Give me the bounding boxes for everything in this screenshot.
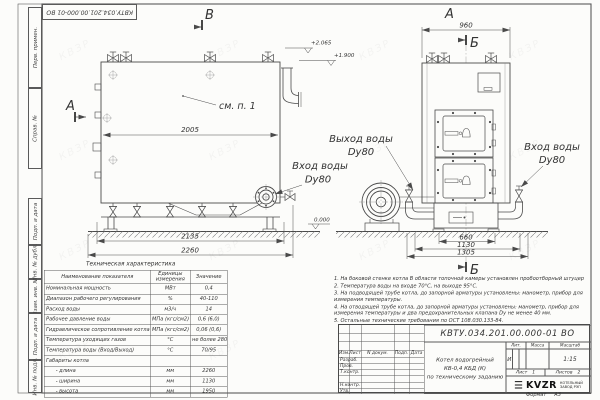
spec-cell-unit: мм bbox=[150, 387, 190, 397]
spec-cell-unit: мм bbox=[150, 376, 190, 386]
spec-cell-value: 0,06 (0,6) bbox=[190, 325, 227, 335]
margin-label: Подп. и дата bbox=[32, 318, 39, 355]
scale-header: Масштаб bbox=[549, 342, 591, 349]
spec-cell-unit: °С bbox=[150, 335, 190, 345]
ground-line bbox=[88, 232, 548, 238]
margin-box-podp-data-1: Подп. и дата bbox=[28, 198, 42, 245]
spec-cell-unit bbox=[150, 356, 190, 366]
product-name-line2: КВ-0,4 КБД (К) bbox=[444, 365, 486, 372]
side-view bbox=[93, 52, 301, 232]
drawing-sheet: КВЗР КВЗР КВЗР КВЗР КВЗР КВЗР КВЗР КВЗР … bbox=[0, 0, 600, 400]
spec-cell-value: 14 bbox=[190, 304, 227, 314]
note-4: 4. На отводящей трубе котла, до запорной… bbox=[334, 304, 591, 317]
sheets-total-cell: Листов 2 bbox=[545, 369, 591, 376]
spec-header-name: Наименование показателя bbox=[44, 270, 150, 284]
margin-label: Инв. № дубл. bbox=[32, 243, 39, 281]
col-data: Дата bbox=[409, 351, 424, 356]
spec-cell-unit: мм bbox=[150, 366, 190, 376]
dim-2005: 2005 bbox=[181, 126, 199, 134]
spec-cell-value: 40-110 bbox=[190, 294, 227, 304]
sig-utv: Утв. bbox=[340, 389, 349, 394]
dim-2260: 2260 bbox=[181, 247, 199, 255]
inlet-side-label: Вход воды bbox=[292, 161, 348, 172]
sig-nkontr: Н.контр. bbox=[340, 383, 360, 388]
spec-cell-unit: МВт bbox=[150, 284, 190, 294]
product-name-line1: Котел водогрейный bbox=[436, 356, 494, 363]
sheet-value: 1 bbox=[532, 370, 535, 375]
spec-cell-unit: м3/ч bbox=[150, 304, 190, 314]
outlet-dn-label: Dy80 bbox=[348, 147, 374, 158]
spec-row: Гидравлическое сопротивление котлаМПа (к… bbox=[44, 325, 227, 335]
side-valve bbox=[280, 191, 295, 201]
spec-row: Номинальная мощностьМВт0,4 bbox=[44, 284, 227, 294]
spec-cell-unit: МПа (кгс/см2) bbox=[150, 315, 190, 325]
spec-cell-name: - длина bbox=[44, 366, 150, 376]
section-label-b-top: Б bbox=[470, 36, 479, 51]
spec-cell-unit: % bbox=[150, 294, 190, 304]
spec-cell-name: Диапазон рабочего регулирования bbox=[44, 294, 150, 304]
outlet-label: Выход воды bbox=[329, 134, 393, 145]
dim-960: 960 bbox=[459, 22, 473, 30]
sig-prov: Пров. bbox=[340, 364, 353, 369]
lit-cell-3 bbox=[519, 349, 526, 369]
lit-header: Лит. bbox=[506, 342, 526, 349]
doc-number-stamp: КВТУ.034.201.00.000-01 ВО bbox=[42, 4, 137, 20]
sig-tkontr: Т.контр. bbox=[340, 370, 360, 375]
title-block: Изм. Лист N докум. Подп. Дата Разраб. Пр… bbox=[338, 324, 590, 393]
inlet-side-dn-label: Dy80 bbox=[305, 175, 331, 186]
sig-razrab: Разраб. bbox=[340, 358, 358, 363]
title-block-doc-number: КВТУ.034.201.00.000-01 ВО bbox=[424, 325, 591, 342]
front-view bbox=[359, 44, 523, 262]
company-line2: ЗАВОД РЭП bbox=[560, 385, 583, 389]
spec-row: - длинамм2260 bbox=[44, 366, 227, 376]
spec-cell-name: Температура воды (Вход/Выход) bbox=[44, 346, 150, 356]
margin-box-sprav-no: Справ. № bbox=[28, 88, 42, 169]
col-izm: Изм. bbox=[339, 351, 349, 356]
dim-2135: 2135 bbox=[181, 233, 199, 241]
spec-table-title: Техническая характеристика bbox=[86, 260, 175, 267]
company-name: KVZR bbox=[526, 380, 557, 391]
sheet-number-cell: Лист 1 bbox=[506, 369, 545, 376]
spec-cell-value: 0,4 bbox=[190, 284, 227, 294]
kvzr-logo-icon: ☰ bbox=[514, 380, 523, 390]
spec-row: Температура уходящих газов°Сне более 280 bbox=[44, 335, 227, 345]
spec-cell-name: - ширина bbox=[44, 376, 150, 386]
spec-cell-value: 1130 bbox=[190, 376, 227, 386]
scale-value: 1:15 bbox=[549, 349, 591, 369]
spec-cell-name: Рабочее давление воды bbox=[44, 315, 150, 325]
spec-row: Габариты котла bbox=[44, 356, 227, 366]
margin-label: Перв. примен. bbox=[32, 27, 39, 68]
format-value: А3 bbox=[554, 392, 561, 398]
spec-row: Температура воды (Вход/Выход)°С70/95 bbox=[44, 346, 227, 356]
section-label-a: А bbox=[65, 99, 75, 114]
mass-value bbox=[526, 349, 549, 369]
spec-header-row: Наименование показателя Единицы измерени… bbox=[44, 270, 227, 284]
margin-label: Справ. № bbox=[32, 115, 39, 142]
spec-cell-name: - высота bbox=[44, 387, 150, 397]
spec-cell-value: 1950 bbox=[190, 387, 227, 397]
sheets-value: 2 bbox=[577, 370, 580, 375]
spec-cell-value: 0,6 (6,0) bbox=[190, 315, 227, 325]
col-dokum: N докум. bbox=[361, 351, 394, 356]
sheet-label: Лист bbox=[516, 370, 527, 375]
spec-row: - ширинамм1130 bbox=[44, 376, 227, 386]
note-3: 3. На подводящей трубе котла, до запорно… bbox=[334, 291, 591, 304]
inlet-right-label: Вход воды bbox=[524, 142, 580, 153]
spec-header-unit: Единицы измерения bbox=[150, 270, 190, 284]
spec-row: - высотамм1950 bbox=[44, 387, 227, 397]
note-2: 2. Температура воды на входе 70°С, на вы… bbox=[334, 283, 591, 289]
product-name-cell: Котел водогрейный КВ-0,4 КБД (К) по техн… bbox=[424, 342, 506, 394]
inlet-right-dn-label: Dy80 bbox=[539, 155, 565, 166]
spec-header-value: Значение bbox=[190, 270, 227, 284]
doc-number-stamp-text: КВТУ.034.201.00.000-01 ВО bbox=[46, 8, 133, 15]
margin-label: Инв. № подл. bbox=[32, 358, 39, 396]
format-label: ФорматА3 bbox=[526, 392, 561, 398]
elevation-mid: +1.900 bbox=[334, 53, 355, 59]
spec-cell-name: Расход воды bbox=[44, 304, 150, 314]
spec-cell-unit: °С bbox=[150, 346, 190, 356]
sheets-label: Листов bbox=[556, 370, 573, 375]
spec-row: Диапазон рабочего регулирования%40-110 bbox=[44, 294, 227, 304]
spec-row: Рабочее давление водыМПа (кгс/см2)0,6 (6… bbox=[44, 315, 227, 325]
spec-cell-value: 2260 bbox=[190, 366, 227, 376]
margin-box-vzam-inv: Взам. инв. № bbox=[28, 279, 42, 313]
margin-box-podp-data-2: Подп. и дата bbox=[28, 313, 42, 360]
spec-table: Наименование показателя Единицы измерени… bbox=[44, 270, 228, 397]
note-1: 1. На боковой стенке котла В области топ… bbox=[334, 276, 591, 282]
spec-row: Расход водым3/ч14 bbox=[44, 304, 227, 314]
spec-cell-value bbox=[190, 356, 227, 366]
view-label-b: В bbox=[205, 8, 214, 23]
margin-label: Подп. и дата bbox=[32, 203, 39, 240]
see-note-label: см. п. 1 bbox=[219, 101, 256, 112]
col-podp: Подп. bbox=[394, 351, 409, 356]
dim-1305: 1305 bbox=[457, 249, 475, 257]
front-label-a: А bbox=[444, 7, 454, 22]
margin-box-inv-podl: Инв. № подл. bbox=[28, 360, 42, 393]
technical-notes: 1. На боковой стенке котла В области топ… bbox=[334, 276, 591, 325]
elevation-ground: 0.000 bbox=[314, 218, 330, 224]
spec-cell-value: не более 280 bbox=[190, 335, 227, 345]
spec-cell-value: 70/95 bbox=[190, 346, 227, 356]
margin-label: Взам. инв. № bbox=[32, 277, 39, 314]
format-word: Формат bbox=[526, 392, 546, 398]
chimney bbox=[281, 68, 301, 107]
mass-header: Масса bbox=[526, 342, 549, 349]
spec-table-wrap: Наименование показателя Единицы измерени… bbox=[44, 270, 228, 397]
elevation-top: +2.065 bbox=[311, 41, 332, 47]
col-list: Лист bbox=[349, 351, 361, 356]
margin-box-perv-primen: Перв. примен. bbox=[28, 7, 42, 88]
spec-cell-unit: МПа (кгс/см2) bbox=[150, 325, 190, 335]
spec-cell-name: Температура уходящих газов bbox=[44, 335, 150, 345]
margin-box-inv-dubl: Инв. № дубл. bbox=[28, 245, 42, 279]
product-name-line3: по техническому заданию bbox=[427, 373, 503, 380]
spec-cell-name: Гидравлическое сопротивление котла bbox=[44, 325, 150, 335]
spec-cell-name: Номинальная мощность bbox=[44, 284, 150, 294]
spec-cell-name: Габариты котла bbox=[44, 356, 150, 366]
